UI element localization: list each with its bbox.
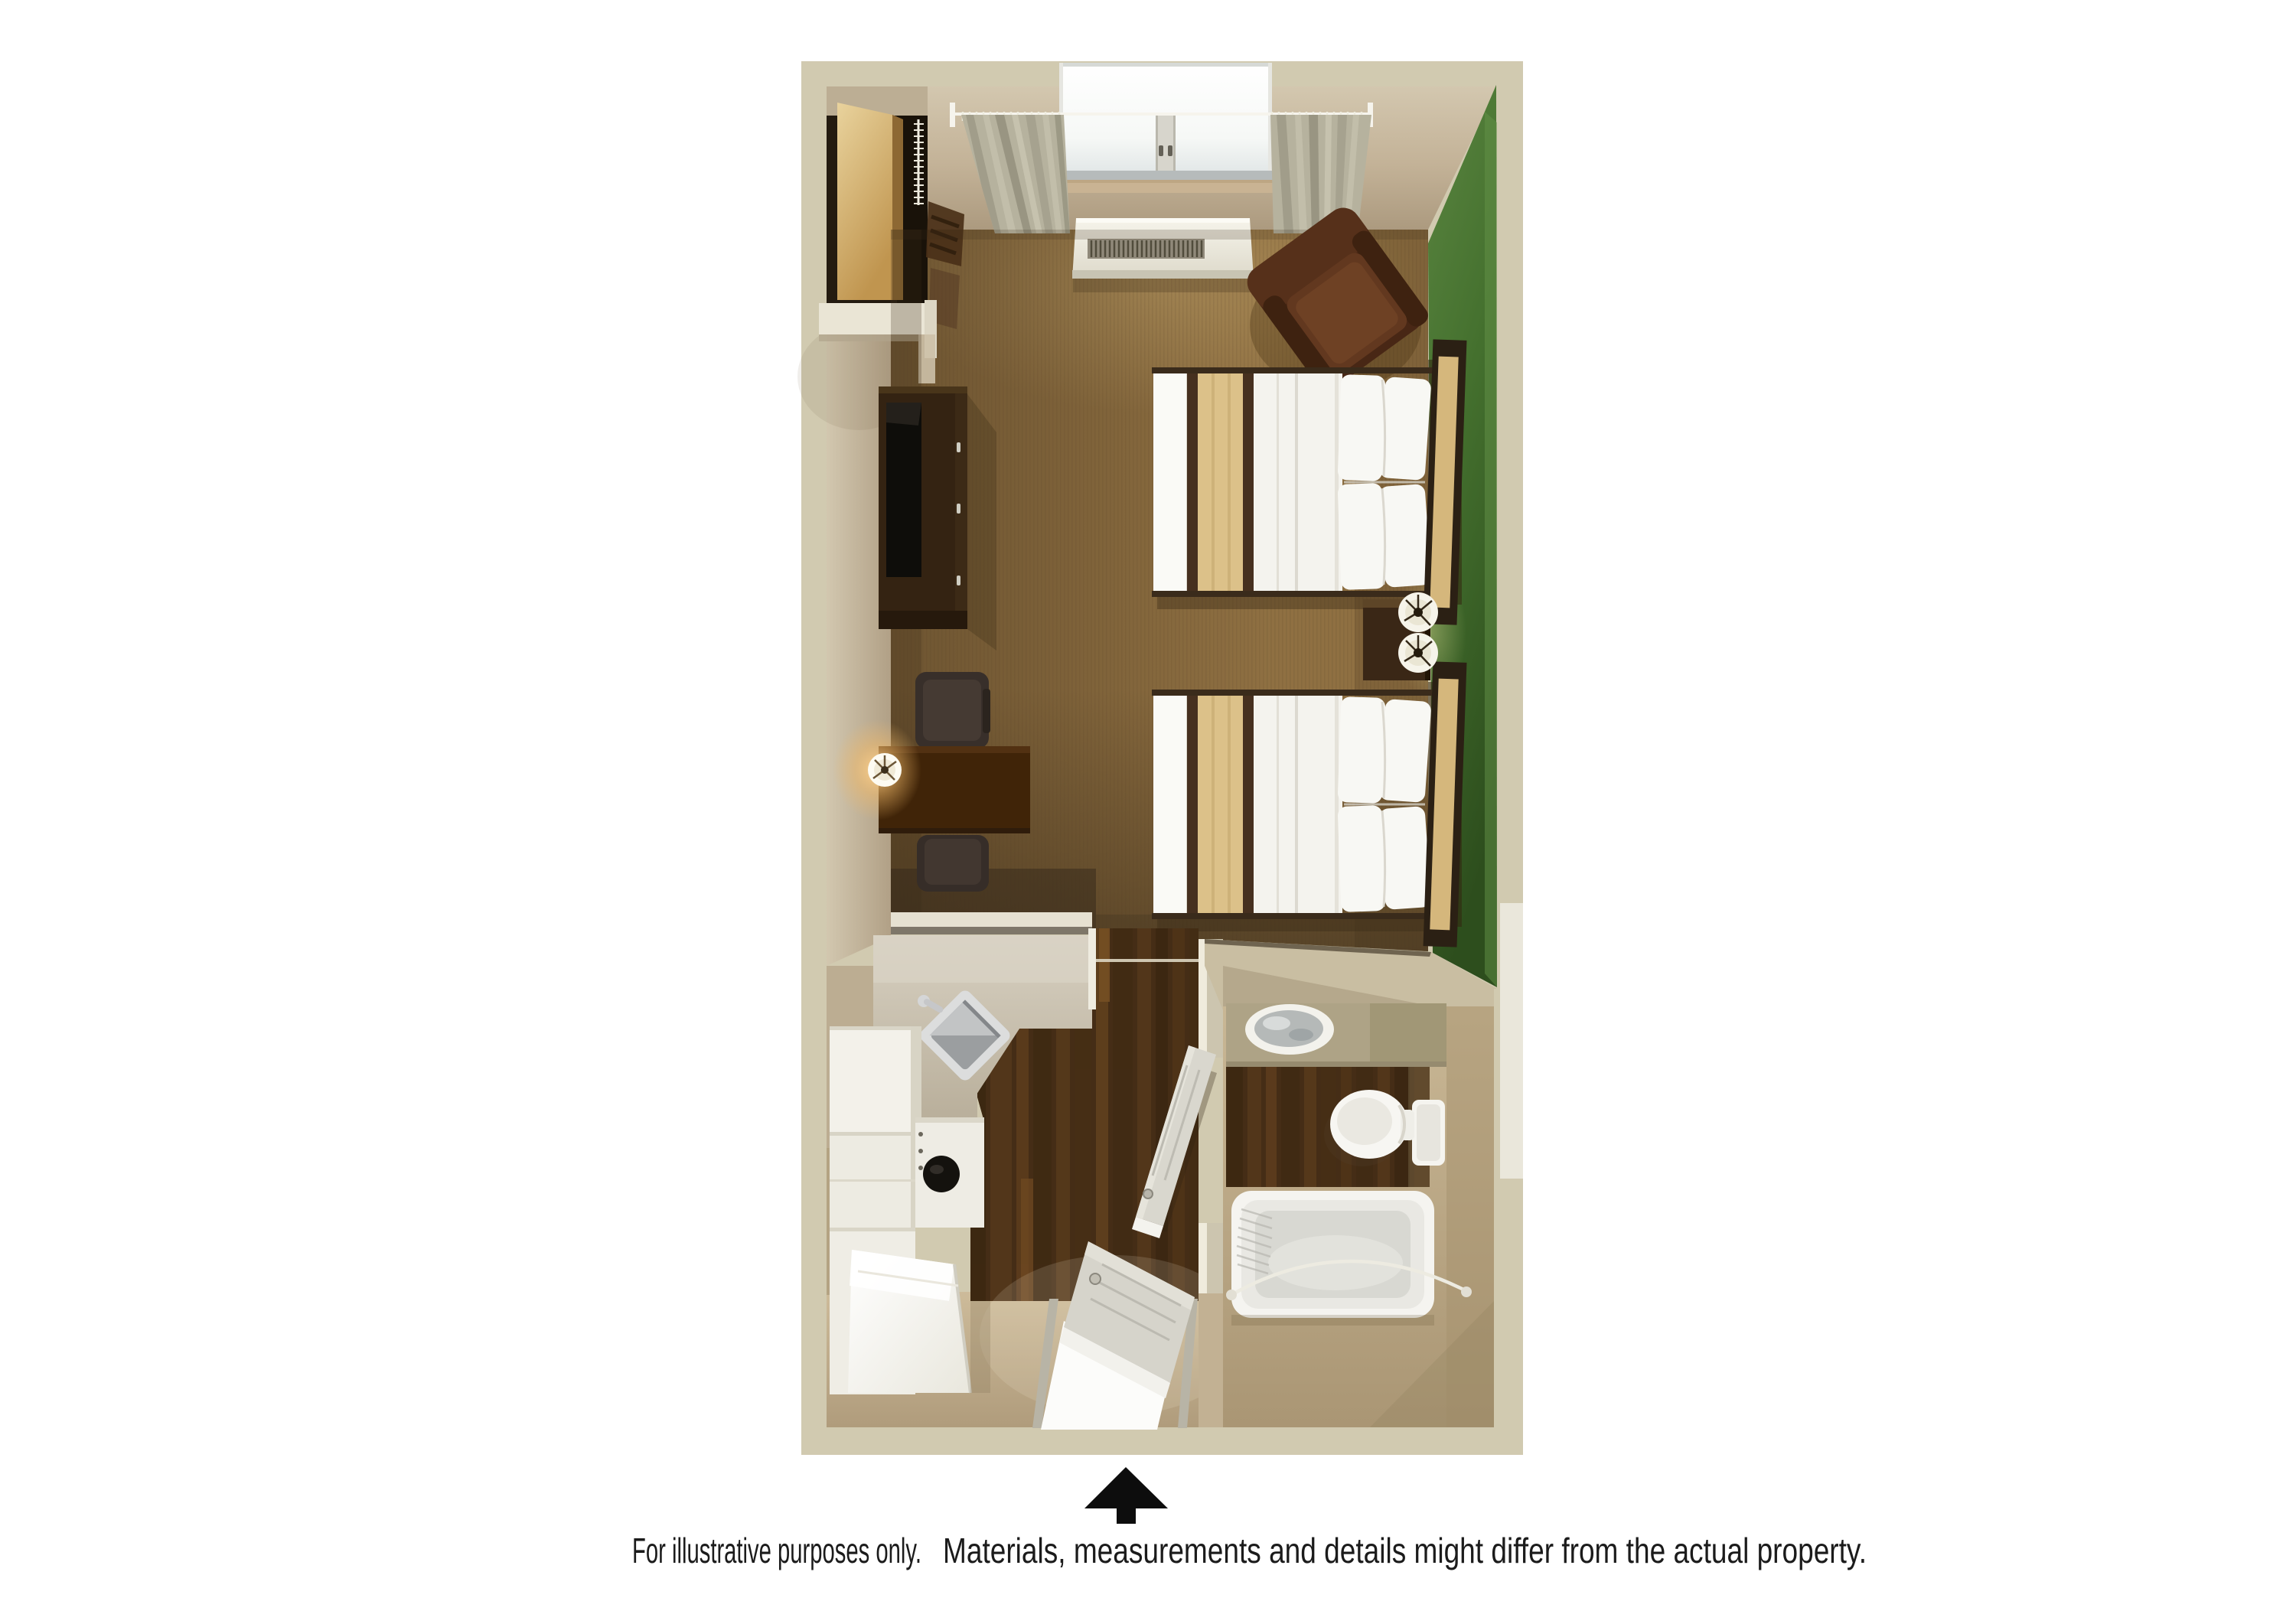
svg-text:Materials, measurements and de: Materials, measurements and details migh… [943, 1531, 1867, 1570]
svg-text:For illustrative purposes only: For illustrative purposes only. [632, 1531, 921, 1570]
